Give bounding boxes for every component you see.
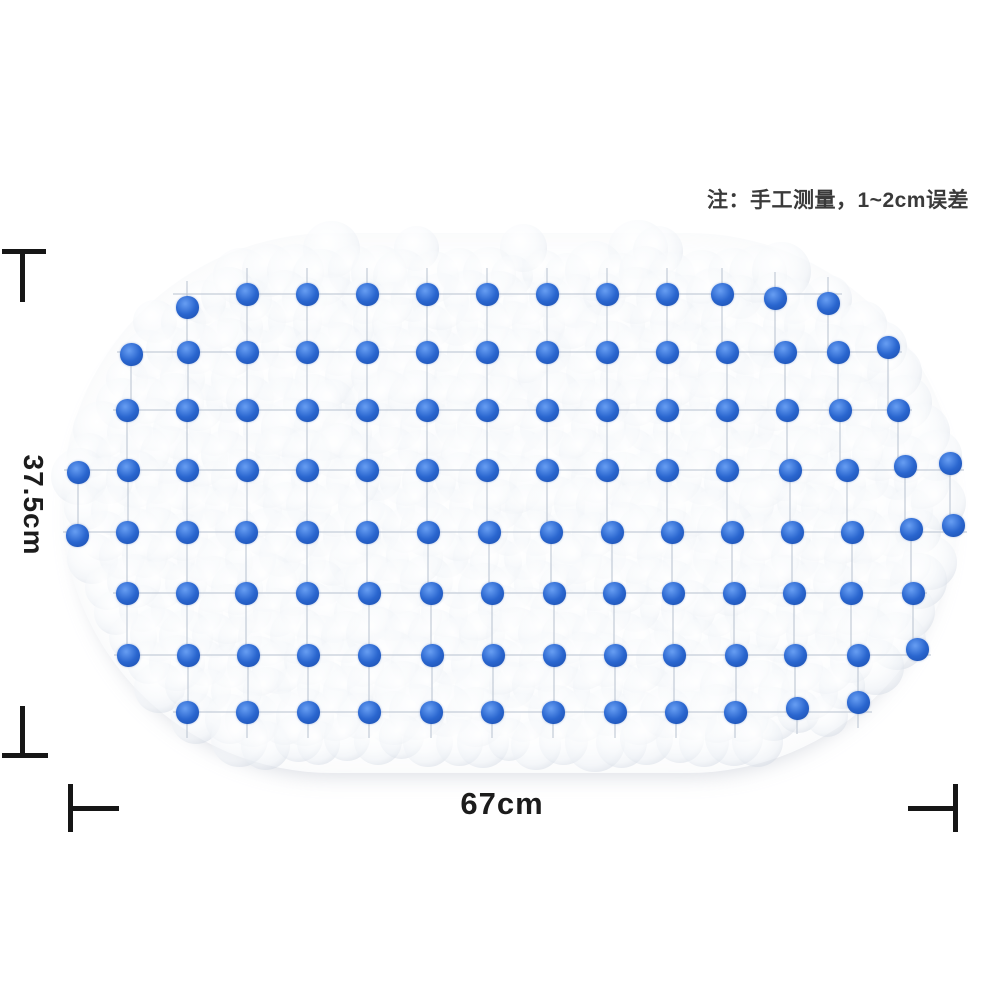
- measurement-note: 注：手工测量，1~2cm误差: [707, 184, 969, 214]
- height-bottom-stem: [20, 706, 25, 756]
- product-image: 注：手工测量，1~2cm误差 37.5cm 67cm: [0, 0, 1000, 1000]
- height-bottom-cap: [2, 753, 48, 758]
- width-left-line: [71, 806, 119, 811]
- height-label: 37.5cm: [15, 440, 51, 570]
- width-right-line: [908, 806, 956, 811]
- bath-mat: [62, 233, 958, 773]
- width-label: 67cm: [432, 786, 572, 822]
- width-right-bar: [953, 784, 958, 832]
- height-top-stem: [20, 252, 25, 302]
